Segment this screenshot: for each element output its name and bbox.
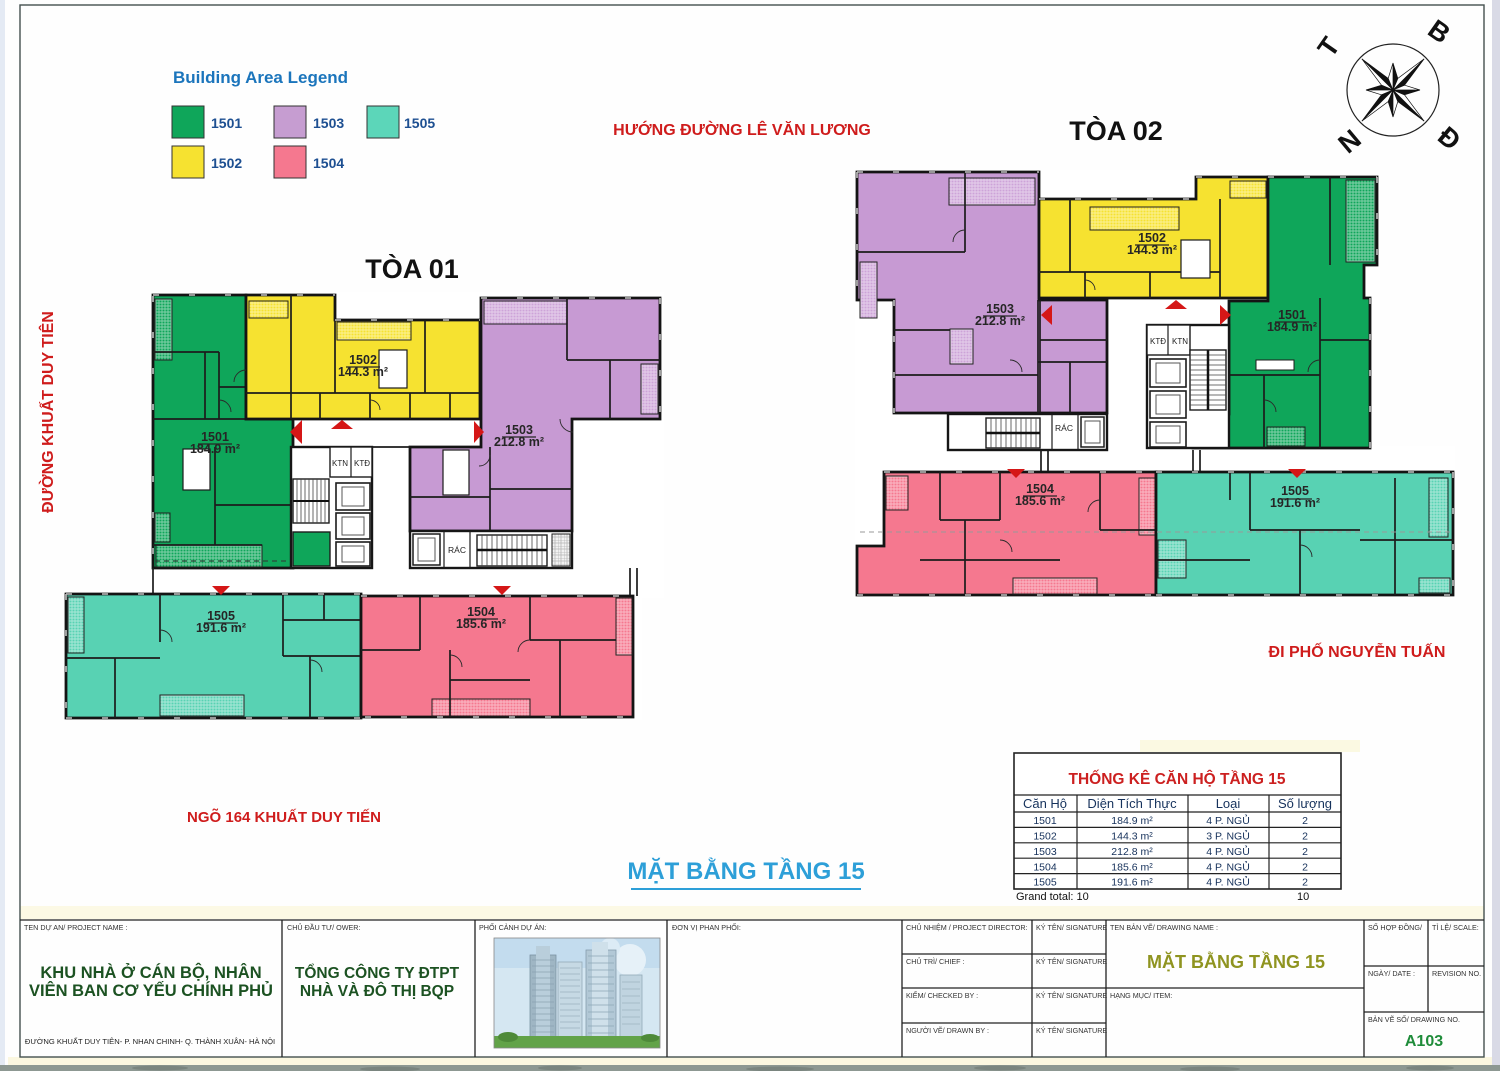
svg-text:ĐI PHỐ NGUYỄN TUẤN: ĐI PHỐ NGUYỄN TUẤN xyxy=(1269,641,1446,661)
svg-text:HƯỚNG ĐƯỜNG LÊ VĂN LƯƠNG: HƯỚNG ĐƯỜNG LÊ VĂN LƯƠNG xyxy=(613,120,871,139)
svg-text:KÝ TÊN/ SIGNATURE: KÝ TÊN/ SIGNATURE xyxy=(1036,923,1107,932)
svg-text:2: 2 xyxy=(1302,846,1308,858)
svg-text:1501: 1501 xyxy=(1033,815,1057,827)
svg-text:NHÀ VÀ ĐÔ THỊ BQP: NHÀ VÀ ĐÔ THỊ BQP xyxy=(300,982,454,1000)
svg-text:4 P. NGỦ: 4 P. NGỦ xyxy=(1206,860,1250,873)
svg-text:2: 2 xyxy=(1302,861,1308,873)
svg-text:Căn Hộ: Căn Hộ xyxy=(1023,796,1067,811)
svg-text:Số lượng: Số lượng xyxy=(1278,796,1332,811)
svg-text:KÝ TÊN/ SIGNATURE: KÝ TÊN/ SIGNATURE xyxy=(1036,991,1107,1000)
svg-text:CHỦ TRÌ/ CHIEF :: CHỦ TRÌ/ CHIEF : xyxy=(906,957,965,966)
svg-text:3 P. NGỦ: 3 P. NGỦ xyxy=(1206,830,1250,843)
svg-text:KTĐ: KTĐ xyxy=(354,459,370,468)
svg-text:HẠNG MỤC/ ITEM:: HẠNG MỤC/ ITEM: xyxy=(1110,991,1172,1000)
svg-text:PHỐI CẢNH DỰ ÁN:: PHỐI CẢNH DỰ ÁN: xyxy=(479,922,546,932)
svg-text:10: 10 xyxy=(1297,891,1309,903)
svg-text:KÝ TÊN/ SIGNATURE: KÝ TÊN/ SIGNATURE xyxy=(1036,957,1107,966)
svg-text:184.9 m²: 184.9 m² xyxy=(190,442,240,456)
svg-text:184.9 m²: 184.9 m² xyxy=(1111,815,1153,827)
svg-text:144.3 m²: 144.3 m² xyxy=(338,365,388,379)
svg-text:1501: 1501 xyxy=(211,115,242,131)
svg-text:NGÀY/ DATE :: NGÀY/ DATE : xyxy=(1368,969,1415,978)
svg-text:1505: 1505 xyxy=(1033,877,1057,889)
svg-text:KTN: KTN xyxy=(332,459,348,468)
svg-text:REVISION NO.: REVISION NO. xyxy=(1432,969,1481,978)
svg-text:ĐƠN VỊ PHAN PHỐI:: ĐƠN VỊ PHAN PHỐI: xyxy=(672,922,741,932)
svg-text:Grand total: 10: Grand total: 10 xyxy=(1016,891,1089,903)
svg-text:1504: 1504 xyxy=(1033,861,1057,873)
svg-text:1502: 1502 xyxy=(1033,831,1057,843)
svg-text:CHỦ NHIỆM / PROJECT DIRECTOR:: CHỦ NHIỆM / PROJECT DIRECTOR: xyxy=(906,923,1028,932)
svg-text:212.8 m²: 212.8 m² xyxy=(975,314,1025,328)
svg-text:191.6 m²: 191.6 m² xyxy=(196,621,246,635)
svg-text:KTĐ: KTĐ xyxy=(1150,337,1166,346)
svg-text:185.6 m²: 185.6 m² xyxy=(456,617,506,631)
svg-text:TỔNG CÔNG TY ĐTPT: TỔNG CÔNG TY ĐTPT xyxy=(295,964,460,982)
svg-text:RÁC: RÁC xyxy=(1055,423,1073,433)
svg-text:A103: A103 xyxy=(1405,1033,1443,1050)
svg-text:RÁC: RÁC xyxy=(448,545,466,555)
svg-text:Diện Tích Thực: Diện Tích Thực xyxy=(1087,796,1177,811)
svg-text:THỐNG KÊ CĂN HỘ TẦNG 15: THỐNG KÊ CĂN HỘ TẦNG 15 xyxy=(1068,770,1285,788)
svg-text:BẢN VẼ SỐ/ DRAWING NO.: BẢN VẼ SỐ/ DRAWING NO. xyxy=(1368,1014,1460,1024)
svg-text:TEN BẢN VẼ/ DRAWING NAME :: TEN BẢN VẼ/ DRAWING NAME : xyxy=(1110,923,1218,932)
svg-text:212.8 m²: 212.8 m² xyxy=(494,435,544,449)
svg-text:191.6 m²: 191.6 m² xyxy=(1111,877,1153,889)
svg-text:191.6 m²: 191.6 m² xyxy=(1270,496,1320,510)
svg-text:4 P. NGỦ: 4 P. NGỦ xyxy=(1206,814,1250,827)
svg-text:1505: 1505 xyxy=(404,115,435,131)
svg-text:ĐƯỜNG KHUẤT DUY TIÊN: ĐƯỜNG KHUẤT DUY TIÊN xyxy=(38,311,57,513)
svg-text:1503: 1503 xyxy=(313,115,344,131)
svg-text:4 P. NGỦ: 4 P. NGỦ xyxy=(1206,845,1250,858)
svg-text:TEN DỰ AN/ PROJECT NAME :: TEN DỰ AN/ PROJECT NAME : xyxy=(24,923,127,932)
svg-text:KIỂM/ CHECKED BY :: KIỂM/ CHECKED BY : xyxy=(906,991,978,1000)
svg-text:1504: 1504 xyxy=(313,155,344,171)
svg-text:MẶT BẰNG TẦNG 15: MẶT BẰNG TẦNG 15 xyxy=(627,857,864,885)
svg-text:Loại: Loại xyxy=(1216,796,1241,811)
svg-text:KÝ TÊN/ SIGNATURE: KÝ TÊN/ SIGNATURE xyxy=(1036,1026,1107,1035)
svg-text:212.8 m²: 212.8 m² xyxy=(1111,846,1153,858)
svg-text:MẶT BẰNG TẦNG 15: MẶT BẰNG TẦNG 15 xyxy=(1147,951,1325,972)
svg-text:185.6 m²: 185.6 m² xyxy=(1111,861,1153,873)
svg-text:TÒA 01: TÒA 01 xyxy=(365,253,459,284)
svg-text:VIÊN BAN CƠ YẾU CHÍNH PHỦ: VIÊN BAN CƠ YẾU CHÍNH PHỦ xyxy=(29,981,273,1000)
svg-text:ĐƯỜNG KHUẤT DUY TIÊN- P. NHAN: ĐƯỜNG KHUẤT DUY TIÊN- P. NHAN CHINH- Q. … xyxy=(25,1036,275,1046)
svg-text:1503: 1503 xyxy=(1033,846,1057,858)
svg-text:2: 2 xyxy=(1302,815,1308,827)
svg-text:4 P. NGỦ: 4 P. NGỦ xyxy=(1206,876,1250,889)
svg-text:TÒA 02: TÒA 02 xyxy=(1069,115,1163,146)
svg-text:2: 2 xyxy=(1302,831,1308,843)
svg-text:KHU NHÀ Ở CÁN BỘ, NHÂN: KHU NHÀ Ở CÁN BỘ, NHÂN xyxy=(40,963,261,982)
svg-text:1502: 1502 xyxy=(211,155,242,171)
svg-text:184.9 m²: 184.9 m² xyxy=(1267,320,1317,334)
svg-text:TỈ LỆ/ SCALE:: TỈ LỆ/ SCALE: xyxy=(1432,923,1479,932)
svg-text:NGƯỜI VẼ/ DRAWN BY :: NGƯỜI VẼ/ DRAWN BY : xyxy=(906,1026,989,1035)
svg-text:Building Area Legend: Building Area Legend xyxy=(173,68,348,87)
svg-text:CHỦ ĐẦU TƯ/ OWER:: CHỦ ĐẦU TƯ/ OWER: xyxy=(287,922,361,932)
svg-text:144.3 m²: 144.3 m² xyxy=(1111,831,1153,843)
svg-text:NGÕ 164 KHUẤT DUY TIẾN: NGÕ 164 KHUẤT DUY TIẾN xyxy=(187,808,381,826)
svg-text:2: 2 xyxy=(1302,877,1308,889)
svg-text:SỐ HỢP ĐỒNG/: SỐ HỢP ĐỒNG/ xyxy=(1368,922,1422,932)
svg-text:KTN: KTN xyxy=(1172,337,1188,346)
svg-text:185.6 m²: 185.6 m² xyxy=(1015,494,1065,508)
svg-text:144.3 m²: 144.3 m² xyxy=(1127,243,1177,257)
